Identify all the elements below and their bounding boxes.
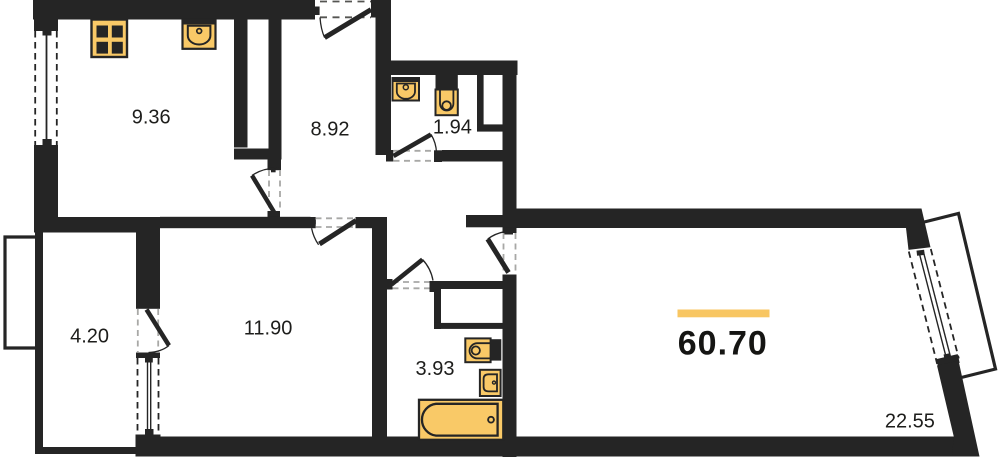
svg-text:60.70: 60.70 [678, 325, 768, 363]
svg-text:8.92: 8.92 [311, 119, 350, 141]
svg-text:1.94: 1.94 [433, 116, 472, 138]
svg-text:3.93: 3.93 [416, 358, 455, 380]
svg-text:9.36: 9.36 [132, 107, 171, 129]
svg-text:4.20: 4.20 [70, 326, 109, 348]
svg-text:22.55: 22.55 [885, 411, 935, 433]
svg-text:11.90: 11.90 [244, 318, 293, 340]
